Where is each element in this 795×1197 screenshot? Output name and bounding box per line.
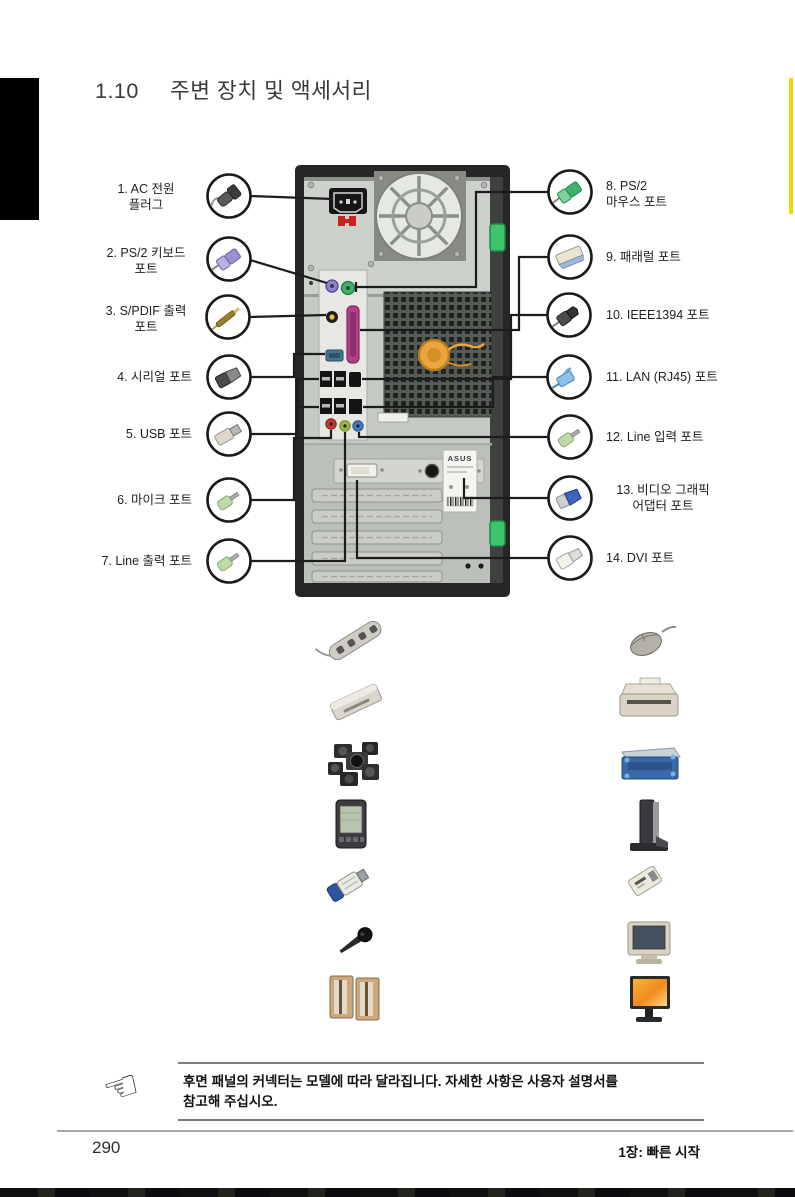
- microphone-image: [336, 925, 374, 958]
- callout-label-vga: 13. 비디오 그래픽 어댑터 포트: [606, 483, 720, 514]
- ac-power-inlet: [329, 188, 367, 214]
- callout-label-usb: 5. USB 포트: [126, 427, 192, 443]
- callout-label-spdif: 3. S/PDIF 출력 포트: [94, 304, 198, 335]
- stereo-speakers-image: [330, 976, 379, 1020]
- note-divider-bottom: [178, 1119, 704, 1121]
- serial-number-sticker: [378, 413, 408, 422]
- lcd-monitor-image: [630, 976, 670, 1022]
- surround-speaker-set-image: [328, 742, 379, 786]
- manual-page: 1.10주변 장치 및 액세서리: [0, 0, 795, 1197]
- psu-fan: [374, 171, 466, 261]
- callout-label-ac-power: 1. AC 전원 플러그: [94, 182, 198, 213]
- callout-ieee1394: [548, 294, 591, 337]
- callout-label-serial: 4. 시리얼 포트: [117, 370, 192, 386]
- callout-serial: [208, 356, 251, 399]
- callout-label-dvi: 14. DVI 포트: [606, 551, 674, 567]
- asus-sticker-label: ASUS: [448, 454, 473, 463]
- chassis-clip-top: [490, 224, 505, 251]
- page-bottom-scan-edge: [0, 1188, 795, 1197]
- docking-stand-image: [630, 800, 668, 851]
- callout-ps2-keyboard: [208, 238, 251, 281]
- callout-spdif: [207, 296, 250, 339]
- callout-usb: [208, 413, 251, 456]
- callout-ps2-mouse: [549, 171, 592, 214]
- audio-jacks: [326, 419, 363, 431]
- usb-flash-drive-image: [326, 867, 370, 903]
- callout-dvi: [549, 537, 592, 580]
- mouse-image: [627, 627, 676, 660]
- usb-adapter-image: [628, 865, 663, 896]
- note-text: 후면 패널의 커넥터는 모델에 따라 달라집니다. 자세한 사항은 사용자 설명…: [183, 1072, 711, 1111]
- page-number: 290: [92, 1138, 120, 1158]
- card-reader-image: [330, 683, 383, 720]
- callout-label-mic: 6. 마이크 포트: [117, 493, 192, 509]
- asus-sticker: ASUS: [443, 450, 477, 512]
- callout-ac-plug: [208, 175, 251, 218]
- power-strip-image: [316, 613, 384, 667]
- chassis-clip-bottom: [490, 521, 505, 546]
- callout-parallel: [549, 236, 592, 279]
- footer-rule: [57, 1130, 793, 1132]
- callout-label-ieee1394: 10. IEEE1394 포트: [606, 308, 710, 324]
- callout-label-line-in: 12. Line 입력 포트: [606, 430, 703, 446]
- printer-image: [620, 678, 678, 716]
- computer-rear-panel-image: ASUS: [295, 165, 510, 597]
- accessory-images-left: [316, 613, 384, 1020]
- callout-lan: [548, 356, 591, 399]
- callout-line-in: [549, 416, 592, 459]
- external-drive-image: [622, 748, 680, 779]
- parallel-port: [347, 306, 359, 363]
- callout-label-lan: 11. LAN (RJ45) 포트: [606, 370, 718, 386]
- accessory-images-right: [620, 627, 680, 1022]
- note-divider-top: [178, 1062, 704, 1064]
- callout-label-ps2-mouse: 8. PS/2 마우스 포트: [606, 179, 667, 210]
- tv-out-port: [426, 465, 439, 478]
- serial-port: [326, 350, 343, 361]
- pda-image: [336, 800, 366, 848]
- rear-panel-diagram: ASUS: [0, 0, 795, 1197]
- crt-monitor-image: [628, 922, 670, 964]
- callout-mic: [208, 479, 251, 522]
- callout-label-line-out: 7. Line 출력 포트: [102, 554, 192, 570]
- spdif-rca-port: [326, 311, 338, 323]
- callout-label-parallel: 9. 패래럴 포트: [606, 250, 681, 266]
- callout-vga: [549, 477, 592, 520]
- callout-line-out: [208, 540, 251, 583]
- callout-label-ps2-keyboard: 2. PS/2 키보드 포트: [94, 246, 198, 277]
- chapter-label: 1장: 빠른 시작: [618, 1141, 700, 1161]
